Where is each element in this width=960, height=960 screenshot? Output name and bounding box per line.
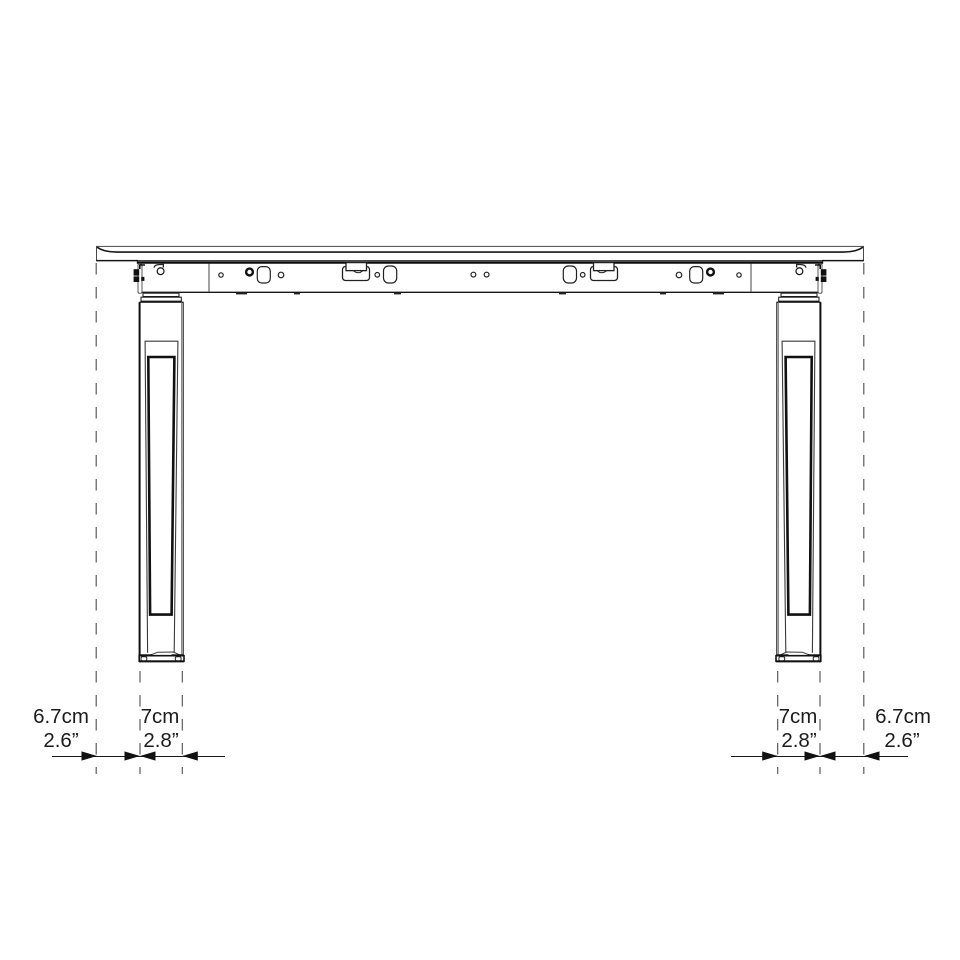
svg-text:2.6”: 2.6” [884,729,919,752]
svg-text:2.8”: 2.8” [143,729,178,752]
svg-text:2.8”: 2.8” [781,729,816,752]
svg-text:6.7cm: 6.7cm [875,705,931,728]
svg-text:2.6”: 2.6” [43,729,78,752]
svg-text:7cm: 7cm [779,705,818,728]
svg-text:7cm: 7cm [141,705,180,728]
svg-text:6.7cm: 6.7cm [33,705,89,728]
